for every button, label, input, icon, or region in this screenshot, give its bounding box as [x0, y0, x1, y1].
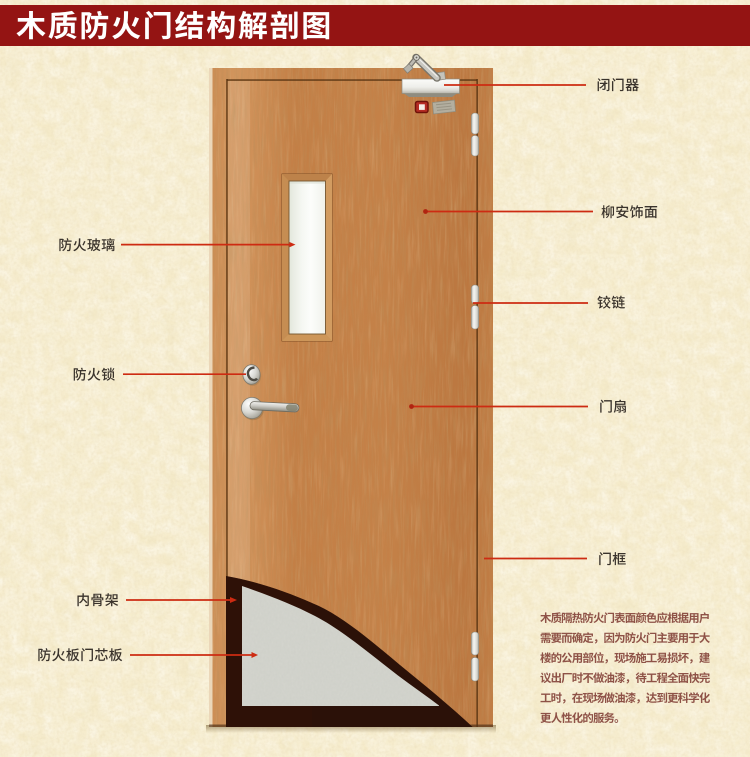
svg-text:闭门器: 闭门器 [597, 75, 640, 95]
svg-text:门框: 门框 [598, 549, 627, 569]
svg-text:楼的公用部位，现场施工易损坏，建: 楼的公用部位，现场施工易损坏，建 [540, 650, 711, 666]
svg-text:木质防火门结构解剖图: 木质防火门结构解剖图 [16, 2, 333, 46]
svg-text:防火板门芯板: 防火板门芯板 [37, 645, 123, 665]
svg-text:工时，在现场做油漆，达到更科学化: 工时，在现场做油漆，达到更科学化 [540, 690, 711, 706]
svg-text:柳安饰面: 柳安饰面 [601, 202, 658, 222]
svg-text:铰链: 铰链 [597, 293, 626, 313]
svg-text:议出厂时不做油漆，待工程全面快完: 议出厂时不做油漆，待工程全面快完 [540, 670, 711, 686]
svg-text:更人性化的服务。: 更人性化的服务。 [540, 710, 625, 726]
svg-text:门扇: 门扇 [599, 397, 628, 417]
svg-text:木质隔热防火门表面颜色应根据用户: 木质隔热防火门表面颜色应根据用户 [540, 610, 709, 626]
svg-text:防火锁: 防火锁 [73, 364, 116, 384]
svg-text:内骨架: 内骨架 [76, 590, 119, 610]
svg-text:需要而确定，因为防火门主要用于大: 需要而确定，因为防火门主要用于大 [540, 630, 711, 646]
svg-text:防火玻璃: 防火玻璃 [58, 235, 115, 255]
